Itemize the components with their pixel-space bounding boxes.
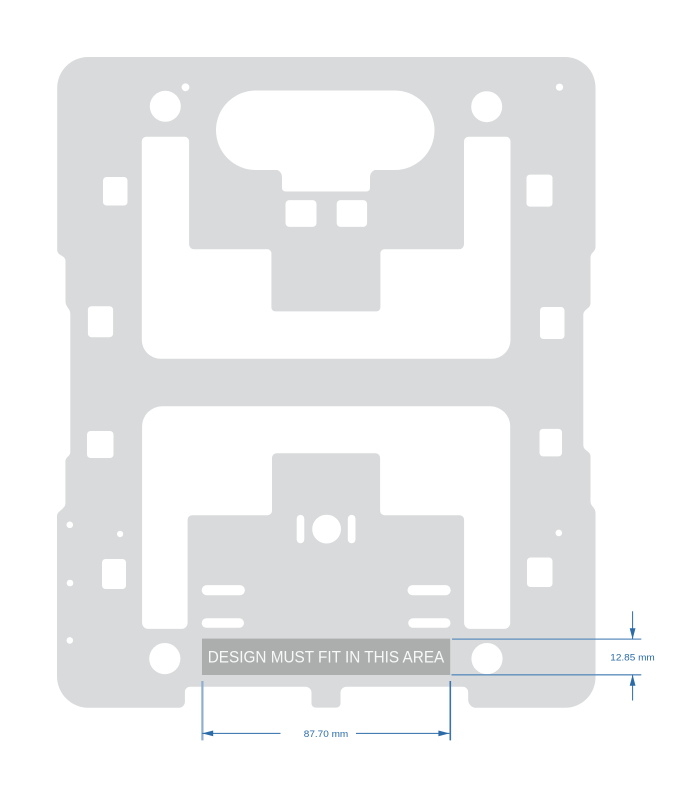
svg-text:87.70 mm: 87.70 mm bbox=[304, 729, 349, 740]
svg-text:12.85 mm: 12.85 mm bbox=[610, 652, 655, 663]
svg-text:DESIGN MUST FIT IN THIS AREA: DESIGN MUST FIT IN THIS AREA bbox=[208, 648, 445, 666]
